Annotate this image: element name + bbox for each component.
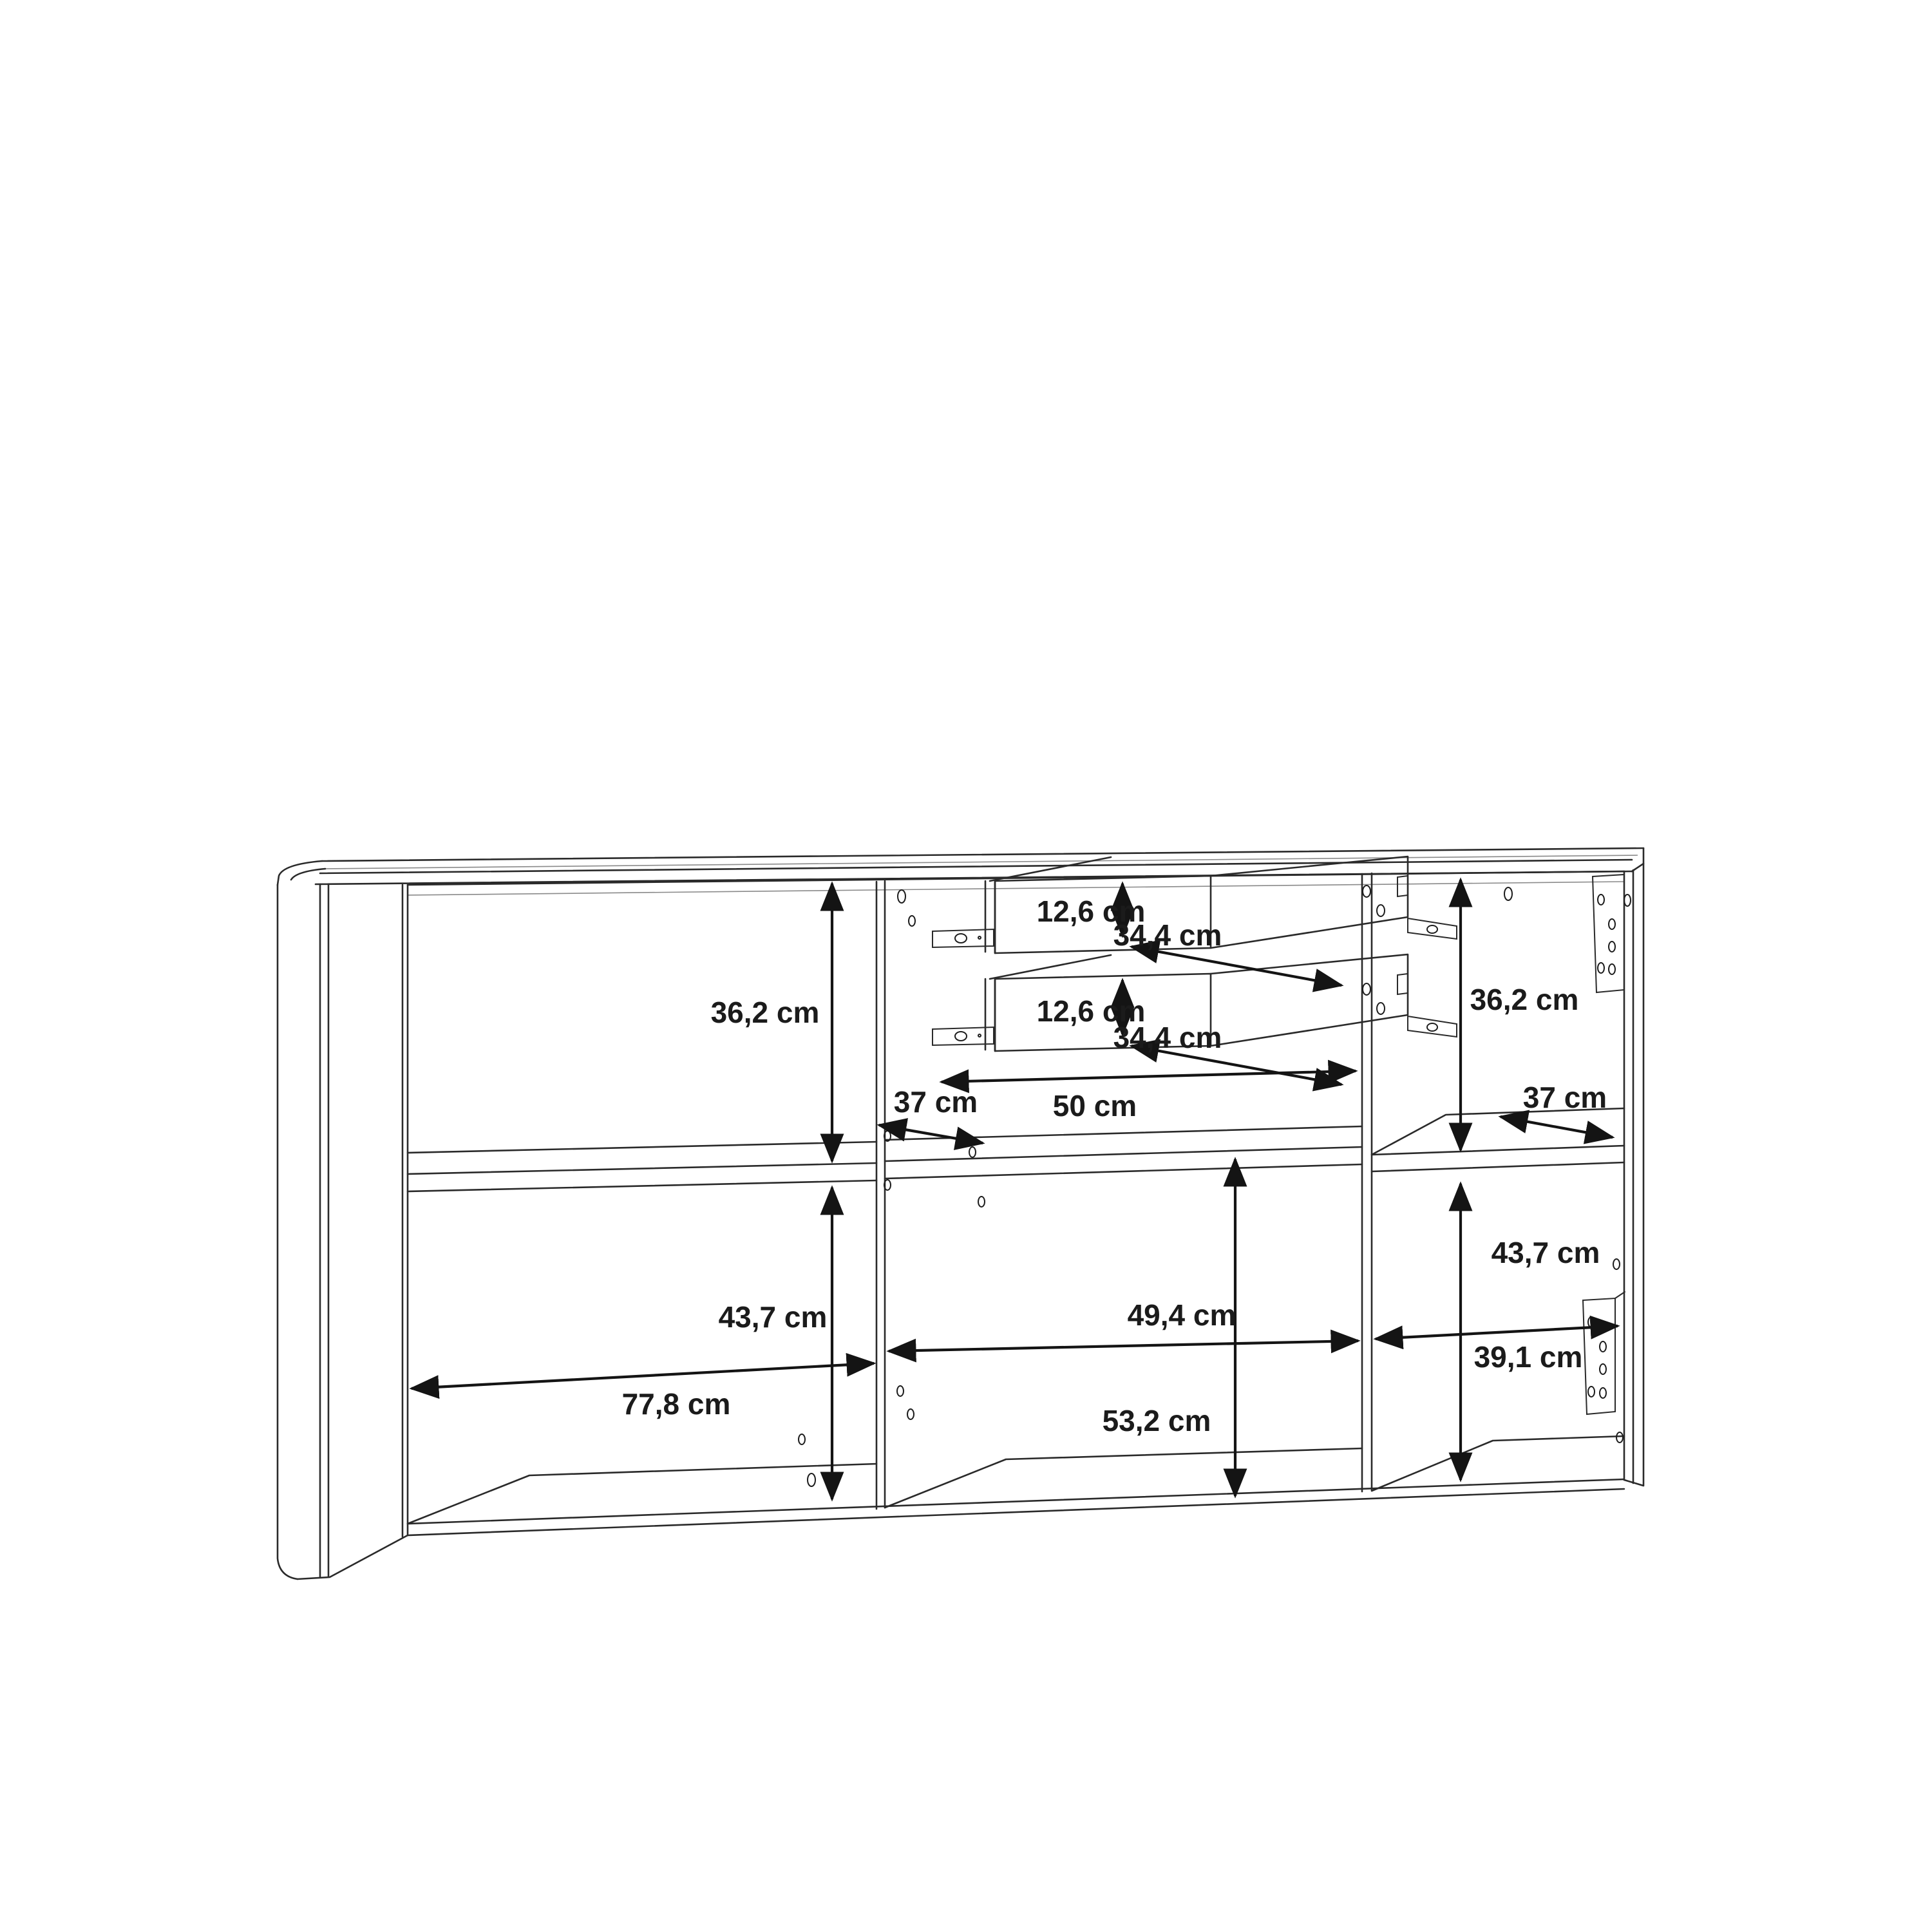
arrow-right-width — [1376, 1326, 1618, 1339]
dim-label-left-upper-height: 36,2 cm — [711, 996, 820, 1029]
dim-label-drawer-width: 50 cm — [1053, 1089, 1137, 1122]
dim-label-middle-width: 53,2 cm — [1103, 1404, 1211, 1437]
dim-label-left-width: 77,8 cm — [622, 1387, 731, 1421]
dimension-arrows — [412, 880, 1618, 1499]
furniture-dimension-diagram: 36,2 cm 37 cm 12,6 cm 34,4 cm 12,6 cm 34… — [0, 0, 1932, 1932]
dim-label-left-shelf-depth: 37 cm — [894, 1085, 978, 1119]
dim-label-right-upper-height: 36,2 cm — [1470, 983, 1579, 1016]
lower-hinge-plate — [1583, 1292, 1625, 1414]
dim-label-right-lower-height: 43,7 cm — [1492, 1236, 1600, 1269]
cabinet-structure — [278, 848, 1643, 1579]
dim-label-right-shelf-depth: 37 cm — [1523, 1081, 1607, 1114]
dim-label-middle-lower-height: 49,4 cm — [1128, 1298, 1236, 1332]
upper-drawer-right-slide-rail — [1408, 918, 1457, 939]
shelf-pin-holes — [799, 887, 1631, 1486]
arrow-left-width — [412, 1363, 874, 1388]
dim-label-right-width: 39,1 cm — [1474, 1340, 1583, 1374]
dim-label-lower-drawer-depth: 34,4 cm — [1113, 1021, 1222, 1054]
arrow-right-shelf-depth — [1501, 1117, 1613, 1137]
arrow-middle-width — [889, 1341, 1358, 1351]
dim-label-left-lower-height: 43,7 cm — [719, 1300, 828, 1334]
upper-hinge-plate — [1593, 875, 1624, 992]
lower-drawer-right-slide-rail — [1408, 1016, 1457, 1037]
sideboard-line-art: 36,2 cm 37 cm 12,6 cm 34,4 cm 12,6 cm 34… — [0, 0, 1932, 1932]
arrow-upper-drawer-depth — [1132, 947, 1341, 985]
dim-label-upper-drawer-depth: 34,4 cm — [1113, 918, 1222, 952]
